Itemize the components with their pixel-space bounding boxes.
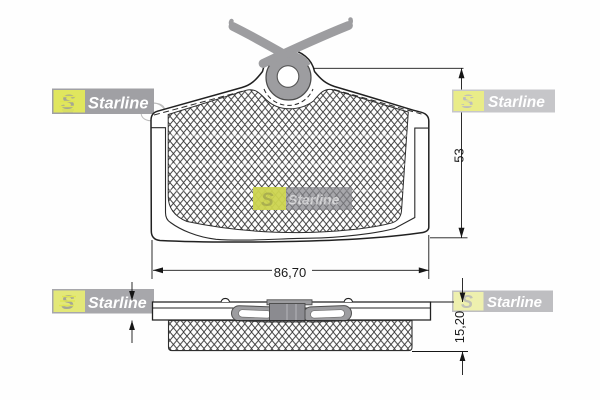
svg-text:Starline: Starline [288,192,340,208]
svg-text:53: 53 [452,148,467,162]
svg-text:86,70: 86,70 [274,265,307,280]
svg-text:S: S [261,190,274,211]
svg-text:Starline: Starline [487,294,542,311]
svg-text:Starline: Starline [88,295,147,312]
svg-text:S: S [61,91,75,114]
svg-text:15,20: 15,20 [452,311,467,344]
svg-text:Starline: Starline [88,95,149,113]
svg-text:S: S [461,92,474,113]
svg-text:S: S [61,292,75,314]
svg-text:Starline: Starline [488,94,545,111]
